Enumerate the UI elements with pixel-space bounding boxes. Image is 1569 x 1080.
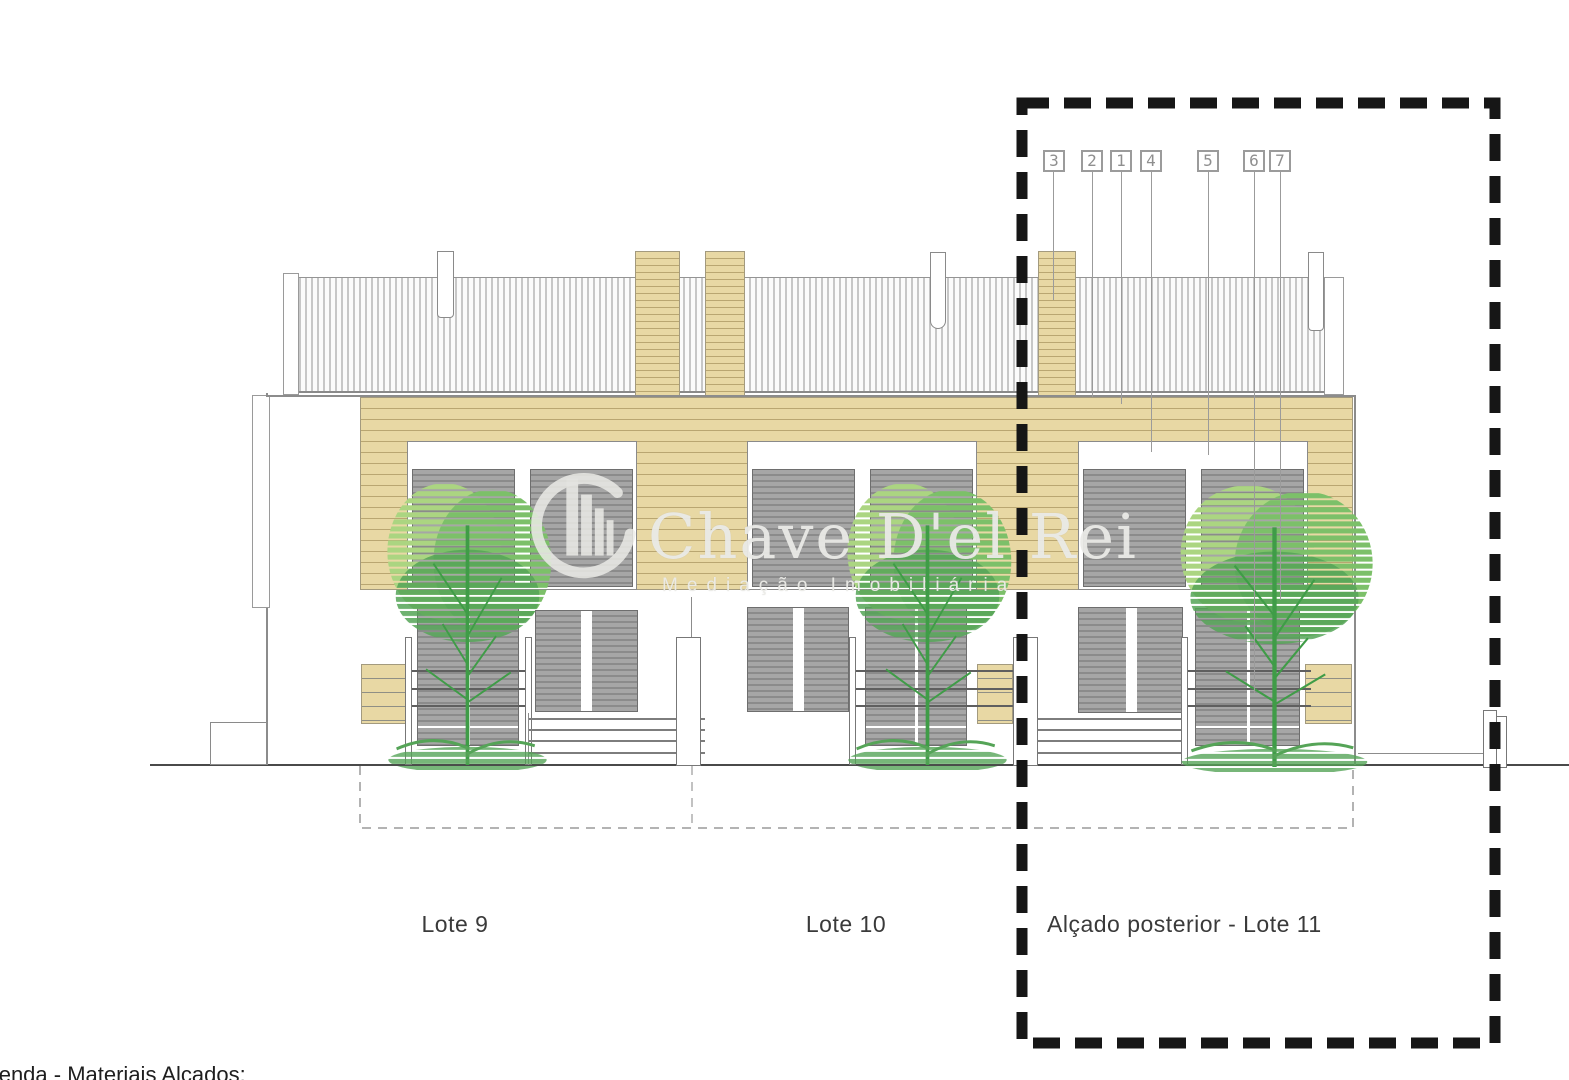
label-lote9: Lote 9 — [390, 911, 520, 938]
legend-caption: Legenda - Materiais Alçados: — [0, 1062, 246, 1080]
elevation-drawing-sheet: 3 2 1 4 5 6 7 Chave D'el Rei Mediação Im… — [0, 0, 1569, 1080]
label-lote11: Alçado posterior - Lote 11 — [1047, 911, 1322, 938]
label-lote10: Lote 10 — [781, 911, 911, 938]
